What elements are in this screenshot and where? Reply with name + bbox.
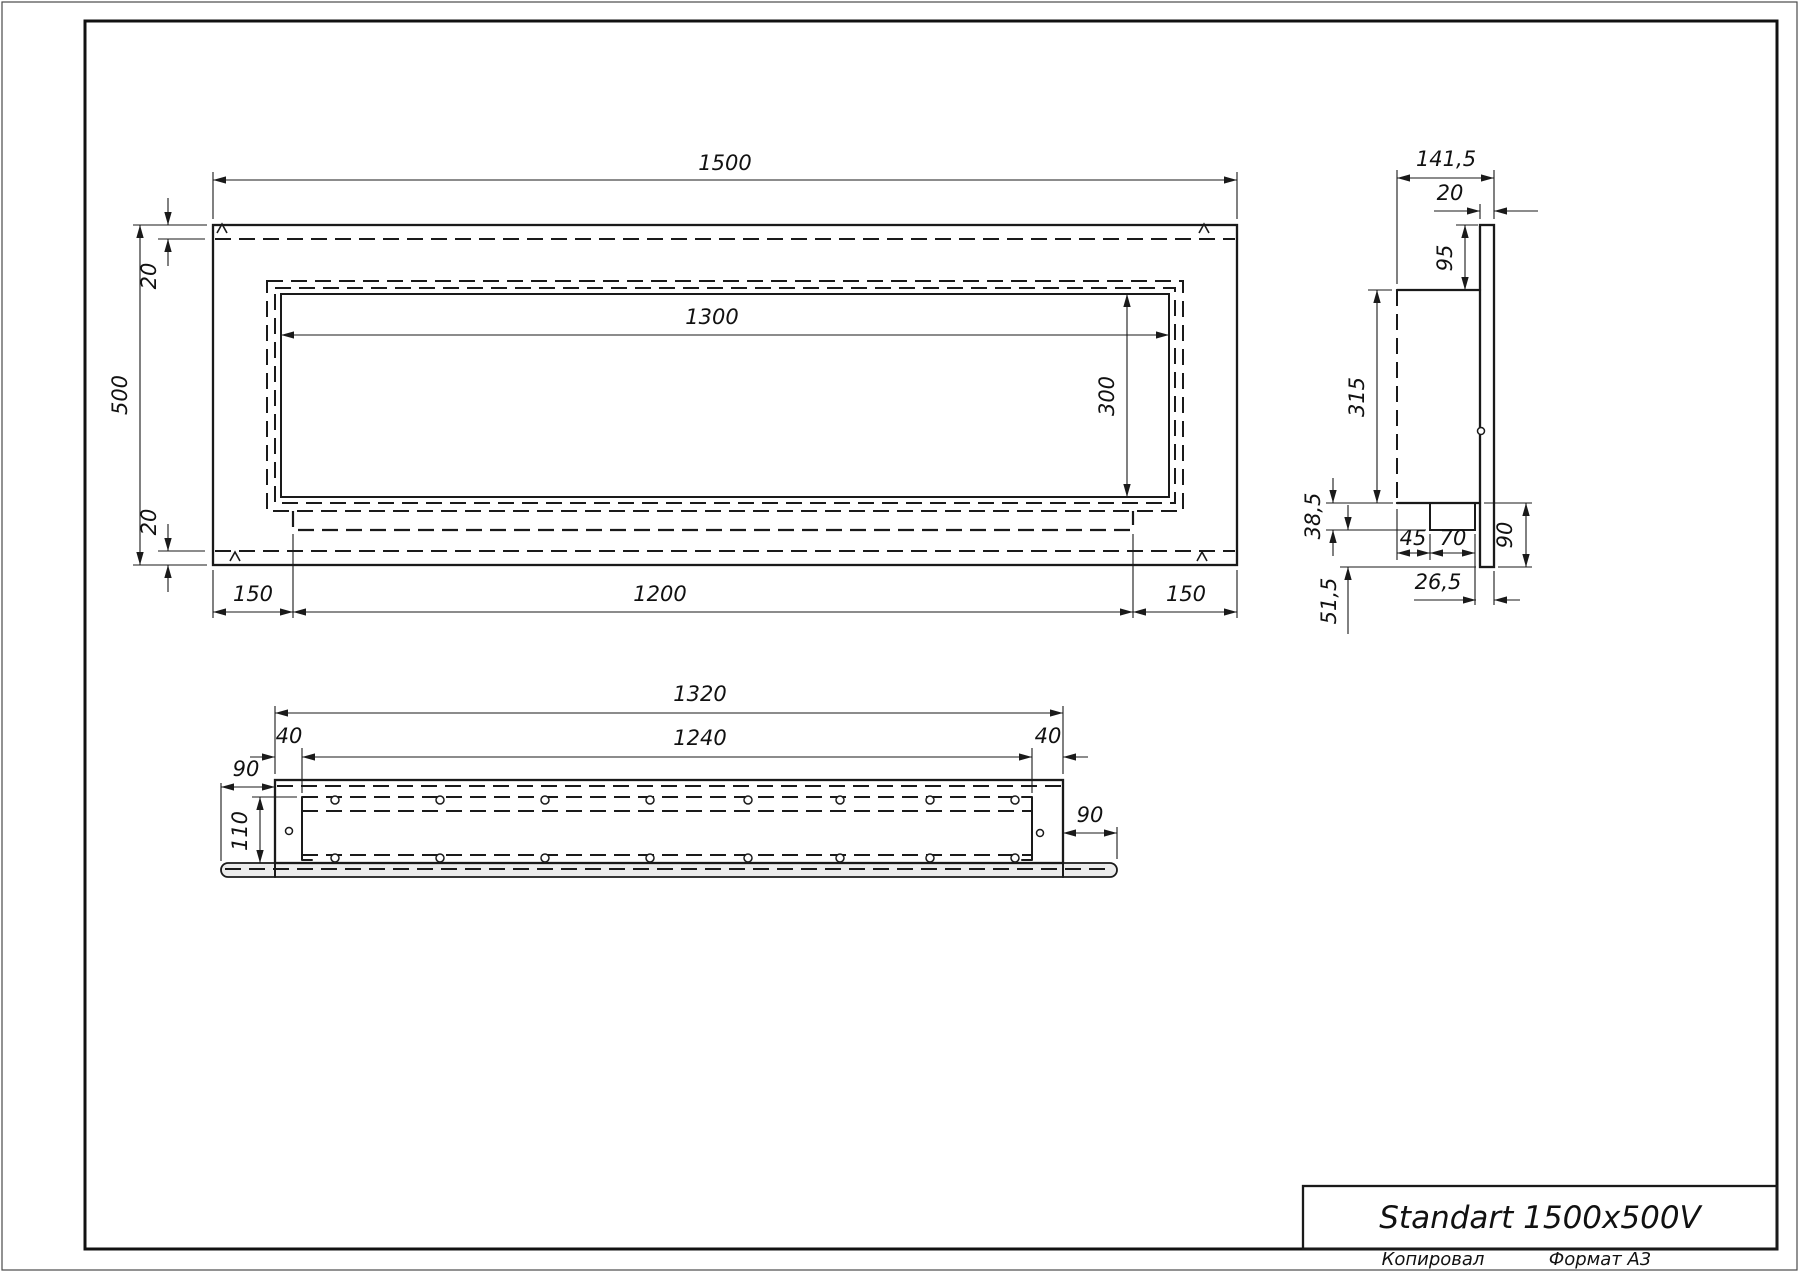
drawing-sheet: 1500 500 20 20 1300 300 150 1200 150 — [0, 0, 1800, 1273]
plan-outer-contour — [275, 780, 1063, 863]
dim-front-side-right: 150 — [1166, 582, 1206, 606]
plan-cavity-left — [302, 797, 312, 860]
dim-front-opening-height: 300 — [1095, 376, 1119, 416]
dim-side-bottom-offset: 51,5 — [1317, 578, 1341, 625]
plan-hole-left — [286, 828, 293, 835]
dim-side-depth: 141,5 — [1416, 147, 1476, 171]
drawing-title: Standart 1500x500V — [1379, 1200, 1703, 1236]
plan-cavity-right — [1022, 797, 1032, 860]
sheet-border — [2, 2, 1797, 1270]
dim-plan-wall-right: 40 — [1035, 724, 1062, 748]
side-mount-hole — [1478, 428, 1485, 435]
dim-plan-cavity: 1240 — [673, 726, 726, 750]
dim-side-top-offset: 95 — [1433, 245, 1457, 272]
dim-plan-plate-left: 90 — [233, 757, 260, 781]
dim-plan-depth: 110 — [228, 811, 252, 851]
dim-plan-plate-right: 90 — [1077, 803, 1104, 827]
clip-mark-icon — [1197, 552, 1207, 561]
drawing-canvas: 1500 500 20 20 1300 300 150 1200 150 — [0, 0, 1800, 1273]
footer-copied-label: Копировал — [1382, 1249, 1485, 1270]
page-edge — [2, 2, 1797, 1270]
front-hidden-tray — [293, 511, 1133, 530]
drawing-frame — [85, 21, 1777, 1249]
plan-hole-right — [1037, 830, 1044, 837]
dim-front-tray: 1200 — [633, 582, 686, 606]
dim-side-step: 38,5 — [1301, 493, 1325, 540]
clip-mark-icon — [230, 552, 240, 561]
dim-side-flange: 20 — [1437, 181, 1464, 205]
plan-dimensions: 1320 1240 40 40 90 110 90 — [221, 682, 1117, 863]
dim-side-burner-width: 70 — [1440, 526, 1467, 550]
dim-side-lower-height: 90 — [1493, 522, 1517, 549]
front-view: 1500 500 20 20 1300 300 150 1200 150 — [108, 151, 1237, 618]
dim-front-margin-bottom: 20 — [137, 509, 161, 536]
footer-format-label: Формат А3 — [1549, 1249, 1652, 1270]
dim-plan-wall-left: 40 — [276, 724, 303, 748]
dim-front-side-left: 150 — [233, 582, 273, 606]
dim-front-width: 1500 — [698, 151, 751, 175]
front-dimensions: 1500 500 20 20 1300 300 150 1200 150 — [108, 151, 1237, 618]
side-dimensions: 141,5 20 95 315 45 70 90 38,5 — [1301, 147, 1538, 634]
dim-plan-width: 1320 — [673, 682, 726, 706]
dim-side-body-height: 315 — [1345, 377, 1369, 417]
title-block: Standart 1500x500V Копировал Формат А3 — [1303, 1186, 1777, 1270]
front-outer-contour — [213, 225, 1237, 565]
side-front-plate — [1480, 225, 1494, 567]
dim-front-height: 500 — [108, 375, 132, 415]
side-view: 141,5 20 95 315 45 70 90 38,5 — [1301, 147, 1538, 634]
dim-front-margin-top: 20 — [137, 263, 161, 290]
dim-front-opening-width: 1300 — [685, 305, 738, 329]
dim-side-lip: 26,5 — [1415, 570, 1462, 594]
plan-view: 1320 1240 40 40 90 110 90 — [221, 682, 1117, 877]
